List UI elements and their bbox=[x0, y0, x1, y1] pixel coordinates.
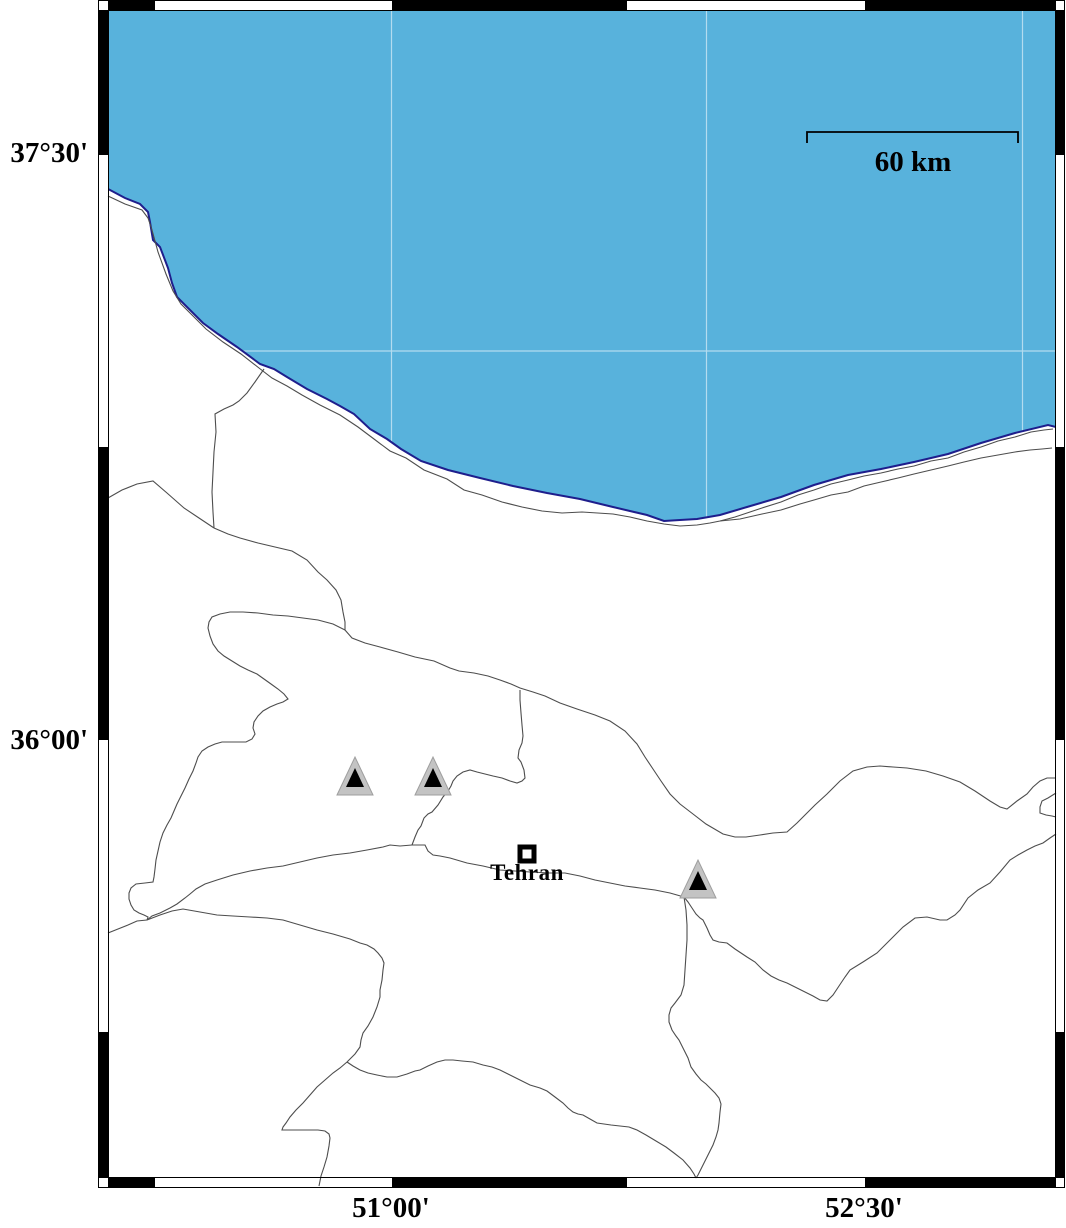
lon-label-51-00: 51°00' bbox=[352, 1192, 430, 1225]
tehran-label: Tehran bbox=[490, 860, 564, 886]
lat-label-36-00: 36°00' bbox=[10, 724, 88, 757]
map-canvas bbox=[0, 0, 1066, 1228]
map-page: 37°30' 36°00' 51°00' 52°30' Tehran 60 km bbox=[0, 0, 1066, 1228]
lat-label-37-30: 37°30' bbox=[10, 137, 88, 170]
lon-label-52-30: 52°30' bbox=[825, 1192, 903, 1225]
scale-bar-label: 60 km bbox=[875, 146, 952, 179]
tehran-city-marker bbox=[520, 847, 534, 861]
caspian-sea bbox=[108, 10, 1056, 521]
